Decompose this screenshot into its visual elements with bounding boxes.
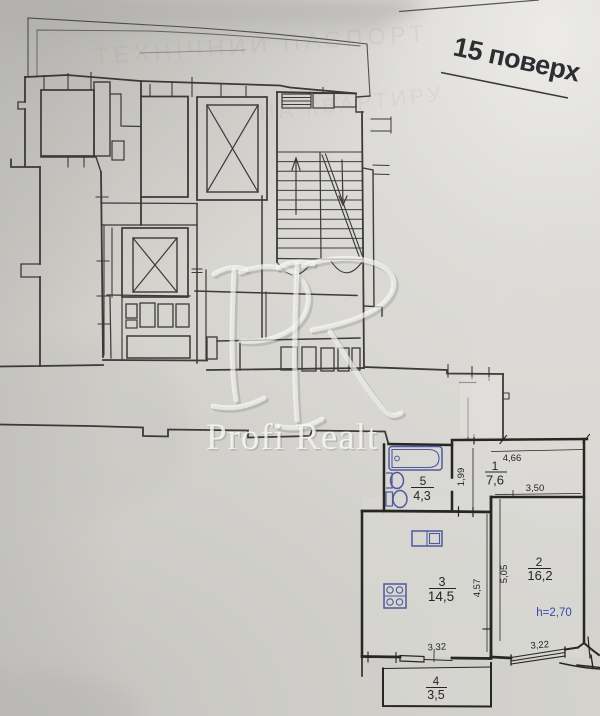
svg-text:2: 2 <box>536 555 543 569</box>
svg-text:14,5: 14,5 <box>428 589 454 604</box>
svg-text:5: 5 <box>420 474 427 488</box>
svg-text:3,32: 3,32 <box>427 642 446 654</box>
svg-text:Profi Realt: Profi Realt <box>206 417 378 458</box>
svg-text:16,2: 16,2 <box>527 568 552 583</box>
svg-text:h=2,70: h=2,70 <box>536 607 572 619</box>
svg-text:1,99: 1,99 <box>456 468 467 487</box>
svg-text:3,22: 3,22 <box>530 639 549 652</box>
svg-text:4,66: 4,66 <box>503 453 522 464</box>
svg-text:3,5: 3,5 <box>427 688 444 702</box>
svg-text:3: 3 <box>439 575 446 589</box>
svg-text:7,6: 7,6 <box>486 473 504 488</box>
svg-text:3,50: 3,50 <box>526 483 545 494</box>
svg-text:4,3: 4,3 <box>413 489 430 503</box>
svg-text:4,57: 4,57 <box>472 579 483 598</box>
svg-text:4: 4 <box>433 676 440 688</box>
svg-text:5,05: 5,05 <box>499 565 510 584</box>
svg-text:1: 1 <box>492 459 499 473</box>
